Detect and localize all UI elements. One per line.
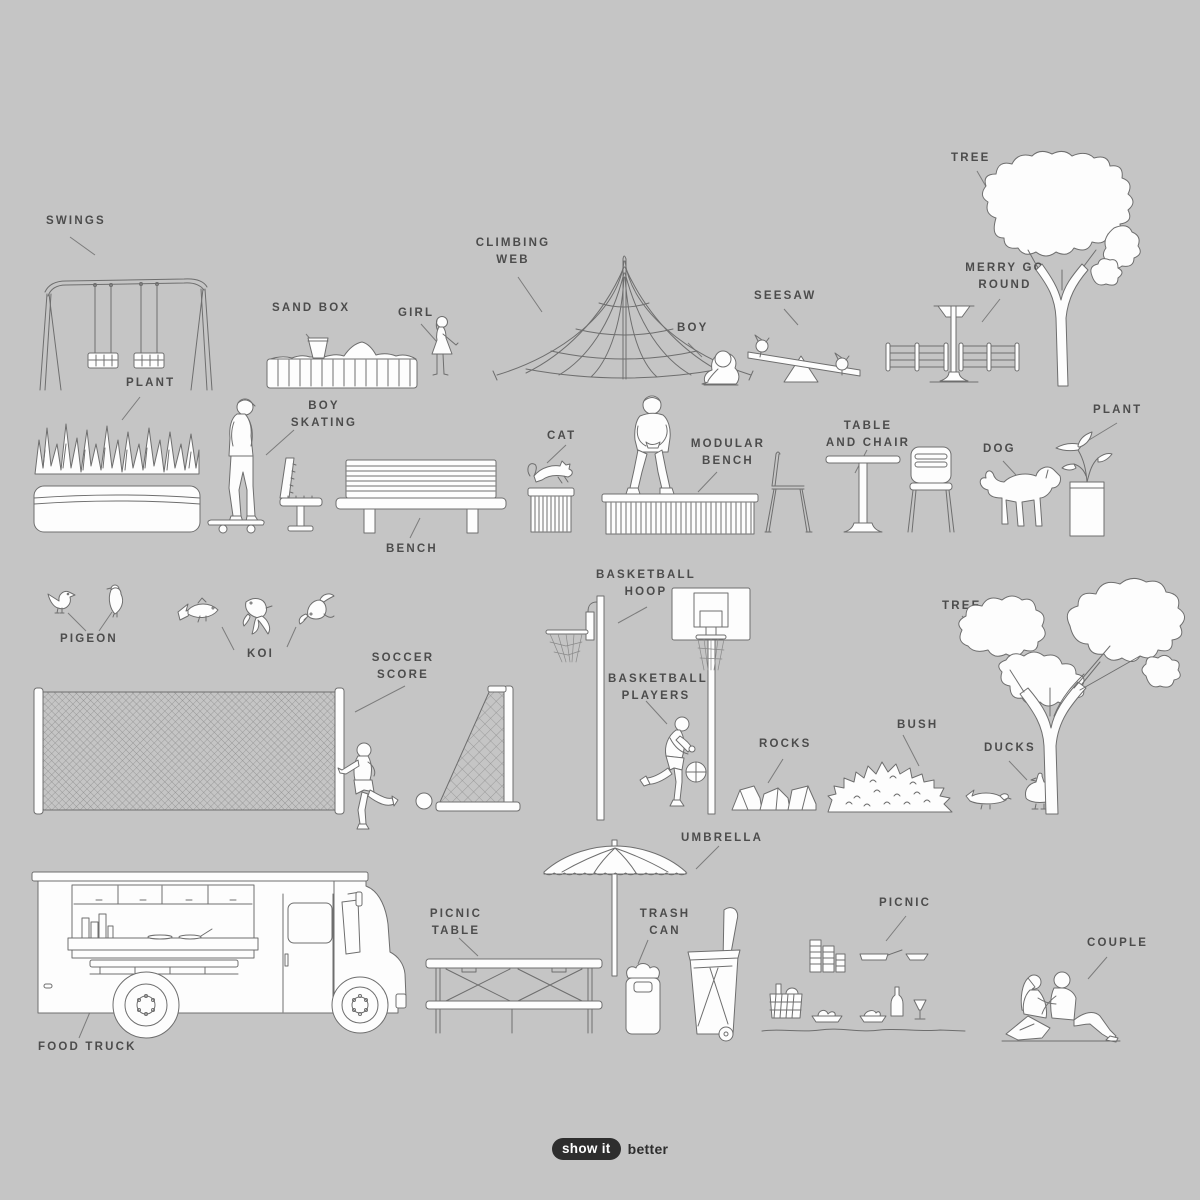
pigeon-drawing (44, 586, 80, 618)
chair-front-drawing (904, 442, 958, 536)
koi-drawing (176, 594, 220, 630)
sandbox-drawing (266, 334, 418, 390)
tree-right-drawing (950, 566, 1190, 816)
soccer-goal-drawing (434, 684, 522, 820)
basketball-player-drawing (640, 712, 708, 816)
poster: SWINGS PLANT SAND BOX GIRL CLIMBING WEB … (0, 0, 1200, 1200)
tree-top-drawing (976, 148, 1144, 388)
logo-badge: show it (552, 1138, 621, 1160)
umbrella-drawing (536, 840, 694, 978)
seesaw-drawing (742, 324, 870, 386)
picnic-spread-drawing (760, 932, 968, 1040)
koi-drawing (298, 592, 338, 634)
cat-drawing (522, 456, 578, 536)
boy-skating-drawing (201, 394, 269, 536)
girl-drawing (427, 314, 463, 382)
basketball-hoop-side-drawing (542, 594, 614, 822)
bench-side-drawing (272, 456, 326, 534)
trash-can-drawing (622, 958, 664, 1036)
soccer-ball-drawing (414, 791, 434, 811)
table-drawing (824, 448, 902, 536)
couple-drawing (998, 968, 1124, 1044)
soccer-net-drawing (34, 686, 344, 820)
plant-left-grass-drawing (33, 410, 201, 476)
modular-bench-drawing (600, 392, 760, 536)
logo-suffix-text: better (628, 1141, 669, 1157)
logo: show it better (552, 1138, 668, 1160)
plant-left-planter-drawing (33, 478, 201, 534)
plant-right-drawing (1048, 426, 1114, 538)
rocks-drawing (730, 774, 820, 814)
bush-drawing (824, 750, 956, 816)
bench-front-drawing (334, 450, 508, 536)
boy-drawing (696, 342, 744, 386)
koi-drawing (238, 592, 280, 636)
chair-side-drawing (762, 450, 822, 536)
swings-drawing (38, 256, 213, 396)
wheelie-bin-drawing (680, 906, 746, 1042)
food-truck-drawing (30, 864, 410, 1042)
pigeon-drawing (99, 584, 129, 618)
soccer-player-drawing (336, 740, 398, 830)
